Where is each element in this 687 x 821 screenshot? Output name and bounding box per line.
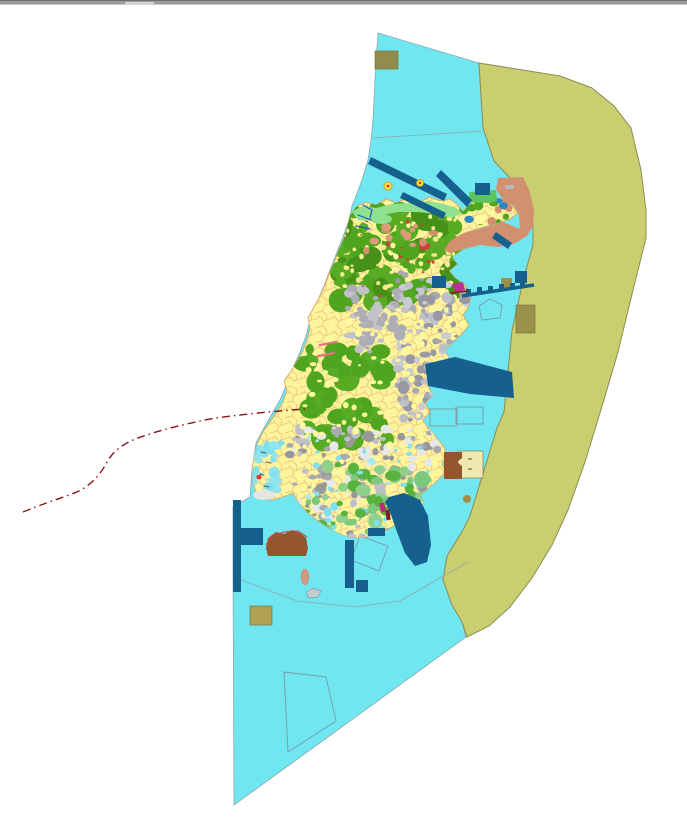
texture-blob-east-urban (454, 335, 458, 338)
pale-panel-dot1 (468, 458, 472, 460)
texture-blob-mid-urban (381, 312, 388, 321)
texture-blob-south-yellow (408, 376, 415, 383)
texture-blob-south-yellow (330, 324, 336, 330)
texture-blob-south-parks (355, 484, 370, 496)
texture-blob-south-yellow (306, 367, 312, 373)
texture-blob-south-yellow (342, 420, 347, 425)
texture-blob-south-urban (344, 437, 351, 442)
texture-blob-east-urban (420, 278, 424, 281)
texture-blob-ne-peninsula (489, 210, 495, 216)
texture-blob-south-urban (387, 428, 393, 433)
marine-rect-east (432, 276, 446, 288)
texture-blob-north-salmon-bits (409, 243, 416, 247)
texture-blob-south-yellow (374, 435, 378, 438)
texture-blob-north-veins (445, 261, 450, 267)
texture-blob-south-yellow (319, 460, 324, 463)
texture-blob-south-yellow (415, 341, 419, 345)
texture-blob-south-yellow (385, 321, 389, 325)
texture-blob-east-urban (407, 411, 414, 415)
texture-blob-south-urban (381, 450, 389, 455)
texture-blob-red-specks (399, 256, 402, 259)
texture-blob-south-urban (285, 451, 295, 459)
texture-blob-north-veins (389, 271, 393, 274)
texture-blob-red-specks (422, 271, 424, 273)
texture-blob-south-yellow (371, 356, 377, 360)
texture-blob-south-water-flecks (328, 486, 332, 490)
texture-blob-east-urban (418, 403, 426, 411)
texture-blob-north-salmon-bits (386, 234, 393, 241)
texture-blob-south-yellow (419, 436, 424, 441)
texture-blob-north-forest (368, 268, 382, 278)
texture-blob-north-veins (419, 261, 423, 266)
texture-blob-south-urban (329, 441, 338, 451)
texture-blob-east-urban (434, 322, 439, 326)
texture-blob-south-yellow (355, 330, 362, 337)
texture-blob-south-yellow (419, 341, 425, 348)
texture-blob-south-yellow (419, 319, 424, 324)
texture-blob-north-veins (389, 264, 393, 267)
texture-blob-north-veins (431, 226, 435, 230)
texture-blob-south-water-flecks (386, 482, 391, 485)
texture-blob-south-parks (338, 483, 348, 492)
texture-blob-east-urban (426, 288, 431, 292)
texture-blob-south-urban (316, 474, 322, 479)
texture-blob-south-yellow (457, 324, 460, 327)
marine-square-south (356, 580, 368, 592)
texture-blob-south-urban (427, 447, 433, 450)
texture-blob-south-yellow (454, 315, 457, 319)
texture-blob-west-lagoon (250, 442, 258, 452)
texture-blob-north-veins (453, 219, 456, 222)
texture-blob-south-parks (322, 494, 328, 501)
texture-blob-north-veins (386, 284, 392, 288)
texture-blob-south-yellow (380, 361, 384, 364)
texture-blob-east-urban (441, 332, 452, 339)
texture-blob-south-yellow (308, 479, 314, 483)
texture-blob-south-water-flecks (398, 460, 401, 463)
texture-blob-south-yellow (353, 532, 357, 535)
texture-blob-mid-urban (377, 326, 382, 330)
texture-blob-north-veins (400, 221, 403, 223)
texture-blob-coast-green-south (368, 507, 377, 515)
texture-blob-south-yellow (327, 439, 331, 442)
texture-blob-north-veins (376, 281, 380, 285)
texture-blob-south-yellow (343, 402, 349, 408)
texture-blob-south-yellow (395, 359, 401, 362)
texture-blob-south-parks (419, 475, 431, 484)
texture-blob-south-urban (408, 462, 416, 471)
texture-blob-ne-peninsula (499, 202, 508, 209)
texture-blob-south-urban (335, 432, 339, 437)
texture-blob-south-water-flecks (407, 436, 410, 438)
texture-blob-south-yellow (402, 347, 408, 353)
texture-blob-mid-urban (407, 329, 413, 333)
point-marker-1 (384, 182, 392, 190)
texture-blob-north-veins (433, 237, 439, 242)
texture-blob-red-specks (362, 285, 364, 287)
texture-blob-south-water-flecks (374, 520, 380, 526)
texture-blob-north-veins (435, 262, 441, 267)
marine-rect-ne (475, 183, 490, 195)
texture-blob-coast-green-south (331, 521, 336, 525)
texture-blob-south-yellow (302, 394, 307, 398)
texture-blob-south-urban (346, 492, 351, 495)
texture-blob-south-urban (404, 438, 412, 445)
texture-blob-south-urban (286, 443, 293, 448)
texture-blob-east-urban (403, 297, 412, 308)
texture-blob-south-water-flecks (313, 462, 320, 468)
texture-blob-north-forest (402, 261, 410, 268)
texture-blob-south-water-flecks (426, 470, 430, 473)
texture-blob-south-yellow (404, 433, 408, 437)
texture-blob-east-urban (417, 365, 425, 374)
texture-blob-south-yellow (312, 483, 316, 487)
texture-blob-north-veins (344, 266, 347, 269)
pale-shoal (253, 490, 275, 500)
texture-blob-south-yellow (302, 473, 306, 477)
texture-blob-east-urban (438, 328, 443, 332)
texture-blob-south-yellow (412, 321, 416, 323)
texture-blob-mid-urban (357, 306, 363, 311)
marine-bar-south (345, 540, 354, 588)
texture-blob-south-yellow (362, 413, 368, 418)
texture-blob-south-yellow (432, 461, 438, 465)
texture-blob-south-yellow (385, 410, 391, 414)
texture-blob-north-veins (389, 251, 394, 256)
texture-blob-north-veins (381, 245, 387, 250)
texture-blob-south-urban (356, 497, 361, 501)
texture-blob-south-water-flecks (362, 450, 366, 454)
texture-blob-east-urban (398, 381, 409, 394)
texture-blob-east-urban (397, 396, 402, 402)
texture-blob-south-yellow (438, 301, 443, 304)
texture-blob-south-yellow (353, 417, 356, 421)
texture-blob-north-salmon-bits (370, 238, 379, 245)
texture-blob-south-yellow (303, 444, 307, 448)
texture-blob-coast-green-south (312, 496, 320, 505)
texture-blob-west-lagoon (270, 441, 278, 451)
texture-blob-red-specks (406, 220, 410, 224)
texture-blob-south-yellow (461, 321, 467, 328)
texture-blob-red-specks (427, 260, 430, 263)
texture-blob-east-urban (420, 352, 431, 358)
texture-blob-south-yellow (347, 360, 351, 362)
texture-blob-red-specks (401, 247, 403, 249)
texture-blob-south-yellow (303, 404, 308, 407)
texture-blob-south-yellow (309, 392, 316, 397)
texture-blob-south-yellow (416, 414, 421, 419)
texture-blob-south-water-flecks (400, 483, 407, 487)
texture-blob-red-specks (406, 258, 409, 261)
texture-blob-east-urban (430, 350, 436, 357)
texture-blob-east-urban (398, 324, 404, 328)
marine-bar-coast (368, 528, 385, 536)
texture-blob-south-yellow (311, 494, 314, 496)
pale-panel-dot2 (468, 468, 472, 470)
salmon-block-mark (505, 185, 514, 189)
texture-blob-east-urban (426, 294, 435, 305)
texture-blob-south-yellow (296, 474, 302, 481)
texture-blob-north-veins (344, 211, 350, 217)
texture-blob-red-specks (432, 260, 435, 264)
texture-blob-east-urban (433, 311, 443, 321)
brown-landfill-east (444, 452, 462, 479)
texture-blob-south-yellow (444, 354, 448, 358)
texture-blob-south-yellow (399, 341, 402, 344)
texture-blob-south-water-flecks (335, 490, 338, 492)
texture-blob-coast-green-south (341, 511, 348, 517)
texture-blob-south-yellow (341, 468, 345, 473)
texture-blob-south-parks (335, 462, 342, 468)
texture-blob-coast-green-south (351, 519, 357, 526)
texture-blob-south-yellow (333, 427, 336, 429)
texture-blob-south-urban (307, 486, 311, 488)
texture-blob-mid-urban (374, 302, 381, 306)
texture-blob-red-specks (360, 234, 362, 236)
olive-block-east (516, 305, 535, 333)
texture-blob-south-water-flecks (315, 439, 318, 442)
texture-blob-south-parks (385, 471, 401, 481)
texture-blob-south-yellow (370, 380, 376, 384)
texture-blob-south-yellow (405, 371, 410, 375)
texture-blob-south-urban (355, 525, 361, 529)
texture-blob-north-veins (419, 254, 423, 258)
texture-blob-south-yellow (420, 332, 426, 336)
texture-blob-north-salmon-bits (429, 230, 439, 236)
texture-blob-north-salmon-bits (419, 238, 427, 246)
texture-blob-north-veins (340, 272, 344, 277)
texture-blob-south-yellow (319, 432, 324, 436)
texture-blob-north-veins (378, 263, 383, 269)
texture-blob-south-yellow (313, 431, 319, 437)
texture-blob-south-yellow (318, 302, 324, 308)
texture-blob-south-water-flecks (306, 494, 311, 499)
texture-blob-east-urban (421, 308, 426, 313)
texture-blob-south-water-flecks (336, 456, 342, 461)
texture-blob-north-salmon-bits (413, 224, 418, 228)
texture-blob-south-parks (350, 475, 358, 481)
texture-blob-north-forest (347, 256, 371, 272)
texture-blob-south-yellow (370, 332, 374, 337)
texture-blob-south-water-flecks (315, 450, 320, 453)
texture-blob-south-yellow (448, 317, 453, 323)
texture-blob-mid-urban (365, 346, 370, 350)
texture-blob-south-parks (371, 477, 383, 485)
texture-blob-mid-urban (344, 333, 353, 339)
texture-blob-south-yellow (352, 405, 357, 411)
texture-blob-south-yellow (335, 469, 342, 475)
texture-blob-south-water-flecks (408, 444, 412, 449)
texture-blob-west-lagoon (278, 441, 285, 446)
texture-blob-south-water-flecks (324, 507, 332, 517)
texture-blob-south-yellow (358, 364, 361, 366)
salmon-oval-islet (301, 569, 309, 585)
texture-blob-red-specks (417, 258, 419, 260)
texture-blob-north-veins (339, 227, 344, 232)
texture-blob-north-veins (359, 254, 364, 260)
texture-blob-east-urban (399, 361, 404, 367)
texture-blob-red-specks (379, 295, 382, 297)
texture-blob-south-yellow (419, 432, 423, 436)
texture-blob-south-urban (323, 475, 332, 480)
texture-blob-east-urban (435, 339, 442, 343)
texture-blob-south-parks (407, 477, 413, 484)
texture-blob-south-yellow (291, 382, 294, 386)
texture-blob-east-urban (403, 395, 408, 401)
texture-blob-mid-urban (389, 315, 398, 322)
texture-blob-mid-forest (351, 357, 370, 378)
texture-blob-south-yellow (324, 382, 331, 388)
texture-blob-mid-forest (327, 367, 340, 376)
map-canvas[interactable] (0, 0, 687, 821)
texture-blob-red-specks (420, 224, 422, 226)
texture-blob-coast-green-south (306, 499, 311, 505)
texture-blob-south-yellow (385, 340, 390, 344)
texture-blob-south-urban (296, 438, 302, 445)
texture-blob-south-water-flecks (417, 446, 422, 449)
texture-blob-south-urban (292, 482, 298, 485)
texture-blob-east-urban (405, 282, 413, 290)
texture-blob-east-urban (414, 357, 420, 364)
texture-blob-south-yellow (419, 423, 426, 428)
texture-blob-east-urban (408, 418, 413, 422)
texture-blob-south-urban (363, 431, 374, 442)
texture-blob-north-veins (350, 265, 353, 267)
texture-blob-south-yellow (444, 308, 448, 313)
texture-blob-south-water-flecks (369, 460, 376, 465)
texture-blob-north-veins (353, 248, 357, 252)
texture-blob-north-veins (378, 234, 382, 237)
texture-blob-south-parks (400, 466, 410, 476)
texture-blob-south-yellow (342, 337, 346, 339)
texture-blob-east-urban (398, 270, 404, 275)
texture-blob-east-urban (395, 278, 400, 283)
texture-blob-south-water-flecks (357, 471, 364, 475)
texture-blob-south-yellow (300, 422, 306, 430)
texture-blob-south-yellow (428, 327, 432, 329)
texture-blob-south-yellow (377, 380, 382, 384)
texture-blob-south-urban (408, 456, 418, 462)
texture-blob-south-urban (373, 448, 379, 455)
texture-blob-south-urban (341, 432, 345, 435)
texture-blob-north-veins (350, 268, 354, 273)
texture-blob-south-yellow (408, 311, 415, 318)
texture-blob-north-salmon-bits (410, 228, 416, 233)
texture-blob-west-lagoon (255, 456, 260, 460)
texture-blob-north-veins (359, 279, 363, 282)
texture-blob-west-lagoon (271, 471, 278, 478)
texture-blob-south-water-flecks (307, 436, 311, 440)
texture-blob-south-water-flecks (315, 491, 320, 496)
texture-blob-mid-urban (366, 320, 374, 328)
texture-blob-ne-peninsula (464, 216, 473, 223)
texture-blob-south-yellow (300, 455, 305, 459)
texture-blob-south-parks (321, 460, 333, 474)
olive-block-north (375, 51, 398, 69)
olive-dot (463, 495, 471, 503)
texture-blob-east-urban (412, 388, 419, 394)
texture-blob-east-urban (418, 288, 425, 295)
texture-blob-coast-green-south (336, 501, 342, 507)
texture-blob-south-yellow (347, 318, 354, 324)
texture-blob-south-urban (322, 453, 326, 458)
texture-blob-mid-urban (393, 294, 400, 300)
texture-blob-mid-urban (373, 296, 379, 301)
texture-blob-north-veins (393, 253, 396, 256)
texture-blob-mid-forest (306, 344, 314, 355)
map-viewport (0, 0, 687, 821)
texture-blob-north-veins (342, 284, 347, 288)
texture-blob-mid-urban (351, 294, 359, 304)
texture-blob-south-yellow (317, 380, 322, 383)
texture-blob-south-water-flecks (406, 453, 412, 456)
texture-blob-north-veins (418, 268, 423, 271)
texture-blob-north-salmon-bits (403, 232, 411, 241)
texture-blob-south-yellow (306, 431, 309, 435)
texture-blob-mid-urban (345, 306, 351, 311)
texture-blob-south-yellow (451, 333, 454, 336)
texture-blob-south-yellow (310, 362, 317, 366)
texture-blob-south-yellow (336, 424, 341, 427)
texture-blob-south-yellow (387, 489, 390, 492)
texture-blob-north-veins (431, 253, 437, 257)
texture-blob-south-urban (417, 450, 426, 456)
texture-blob-coast-green-south (355, 509, 366, 518)
texture-blob-south-urban (389, 455, 394, 461)
texture-blob-north-forest (338, 257, 347, 263)
texture-blob-south-yellow (370, 487, 373, 489)
texture-blob-south-yellow (387, 441, 394, 449)
olive-block-south (250, 606, 272, 625)
texture-blob-red-specks (386, 242, 390, 247)
texture-blob-north-salmon-bits (363, 247, 369, 254)
texture-blob-east-urban (459, 299, 464, 303)
texture-blob-south-urban (407, 428, 412, 433)
texture-blob-ne-peninsula (475, 215, 485, 225)
texture-blob-east-urban (405, 354, 416, 364)
texture-blob-north-salmon-bits (381, 223, 391, 231)
shore-green-bulge (370, 214, 392, 224)
texture-blob-south-yellow (431, 307, 435, 312)
texture-blob-south-urban (433, 446, 441, 454)
texture-blob-south-yellow (295, 449, 298, 452)
texture-blob-south-yellow (402, 342, 406, 345)
texture-blob-south-yellow (411, 404, 416, 409)
texture-blob-south-yellow (326, 338, 330, 342)
texture-blob-south-urban (383, 456, 390, 461)
texture-blob-west-lagoon (266, 478, 271, 481)
texture-blob-north-veins (390, 243, 395, 249)
texture-blob-north-veins (428, 215, 432, 219)
texture-blob-north-veins (440, 267, 444, 270)
texture-blob-south-urban (309, 475, 317, 480)
texture-blob-south-yellow (324, 370, 328, 374)
texture-blob-north-veins (396, 262, 400, 265)
texture-blob-mid-forest (338, 364, 350, 378)
texture-blob-south-water-flecks (394, 449, 397, 452)
texture-blob-south-parks (374, 465, 386, 474)
texture-blob-south-yellow (400, 430, 405, 433)
point-marker-2 (417, 180, 424, 187)
texture-blob-south-urban (292, 437, 296, 441)
texture-blob-south-yellow (347, 458, 351, 461)
texture-blob-south-urban (397, 433, 405, 440)
texture-blob-south-urban (379, 437, 386, 441)
texture-blob-ne-peninsula (503, 214, 509, 220)
texture-blob-east-urban (399, 414, 408, 423)
texture-blob-south-yellow (377, 411, 383, 415)
texture-blob-mid-urban (367, 350, 372, 353)
